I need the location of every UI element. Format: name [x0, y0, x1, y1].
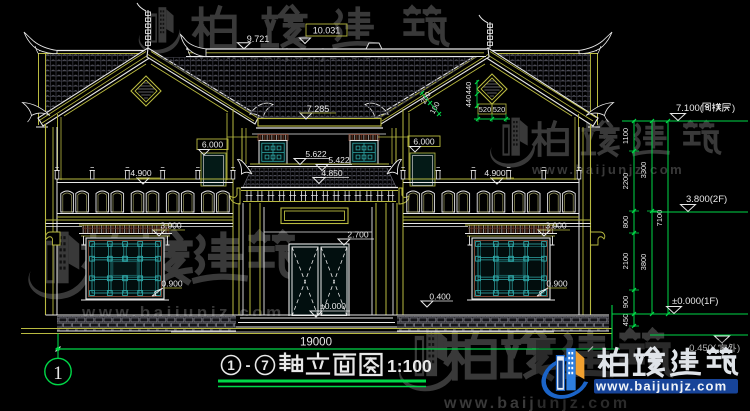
- svg-text:2200: 2200: [621, 173, 630, 190]
- svg-text:7: 7: [261, 358, 269, 373]
- svg-text:www.baijunjz.com: www.baijunjz.com: [595, 379, 727, 394]
- svg-text:2100: 2100: [621, 253, 630, 270]
- svg-text:3800: 3800: [639, 254, 648, 271]
- svg-text:4.900: 4.900: [484, 168, 506, 178]
- svg-text:2.700: 2.700: [347, 230, 369, 240]
- svg-text:3.000: 3.000: [160, 221, 182, 231]
- svg-text:1: 1: [53, 363, 63, 384]
- svg-text:1:100: 1:100: [387, 356, 432, 376]
- svg-text:6.000: 6.000: [202, 140, 224, 150]
- svg-text:5.622: 5.622: [305, 149, 327, 159]
- svg-text:1100: 1100: [621, 128, 630, 144]
- svg-text:1: 1: [227, 358, 235, 373]
- svg-text:10.031: 10.031: [313, 26, 341, 36]
- svg-text:6.000: 6.000: [413, 137, 435, 147]
- svg-text:0.900: 0.900: [161, 279, 183, 289]
- svg-text:5.422: 5.422: [328, 155, 350, 165]
- svg-text:-: -: [246, 357, 251, 374]
- svg-text:520: 520: [479, 105, 492, 114]
- svg-text:0.900: 0.900: [546, 279, 568, 289]
- svg-text:3.000: 3.000: [545, 221, 567, 231]
- svg-text:±0.000: ±0.000: [320, 301, 346, 311]
- svg-text:±0.000(1F): ±0.000(1F): [672, 296, 718, 307]
- svg-text:440: 440: [464, 82, 473, 95]
- svg-text:3300: 3300: [639, 162, 648, 179]
- svg-text:520: 520: [493, 105, 506, 114]
- svg-text:450: 450: [621, 314, 630, 327]
- svg-text:4.850: 4.850: [321, 168, 343, 178]
- svg-text:): ): [732, 103, 735, 114]
- svg-text:4.900: 4.900: [130, 168, 152, 178]
- svg-text:440: 440: [464, 95, 473, 108]
- svg-text:800: 800: [621, 216, 630, 229]
- svg-text:3.800(2F): 3.800(2F): [686, 194, 727, 205]
- svg-text:0.400: 0.400: [429, 292, 451, 302]
- svg-text:www.baijunjz.com: www.baijunjz.com: [531, 162, 684, 177]
- svg-text:19000: 19000: [300, 337, 332, 349]
- svg-text:900: 900: [621, 296, 630, 309]
- svg-text:7.100(: 7.100(: [676, 103, 704, 114]
